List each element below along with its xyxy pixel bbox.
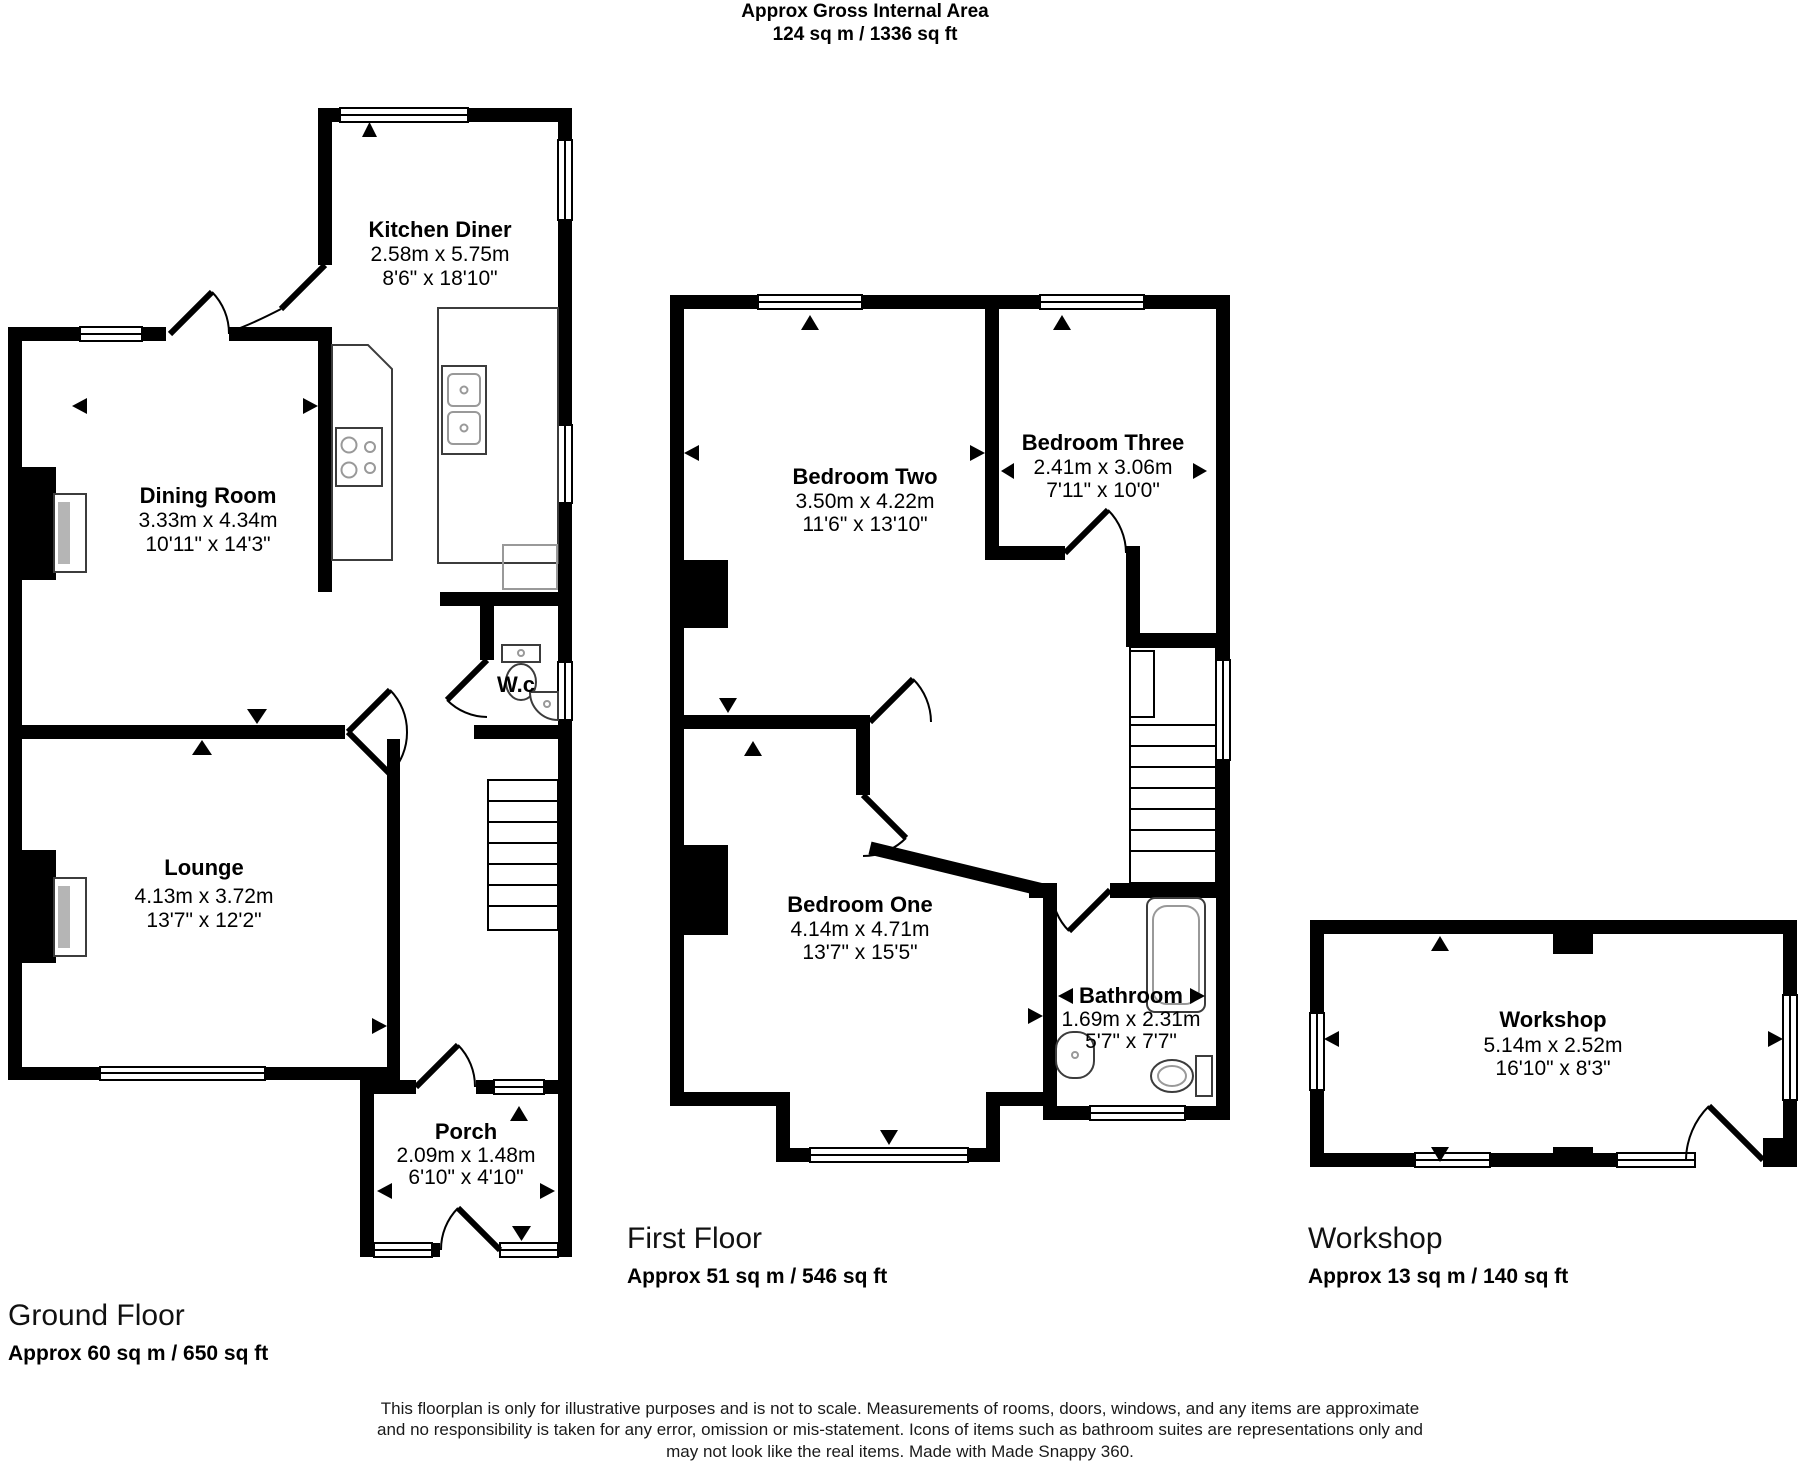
- lounge-fireplace-icon: [54, 878, 86, 956]
- room-metric: 5.14m x 2.52m: [1484, 1034, 1623, 1057]
- room-imperial: 13'7" x 12'2": [146, 909, 261, 932]
- view-marker-left-icon: [377, 1183, 392, 1199]
- bedroom-two-label: Bedroom Two 3.50m x 4.22m 11'6" x 13'10": [792, 464, 937, 536]
- first-floor-doors: [863, 510, 1126, 931]
- room-metric: 2.09m x 1.48m: [397, 1144, 536, 1167]
- room-metric: 3.50m x 4.22m: [796, 490, 935, 513]
- workshop-area: Approx 13 sq m / 140 sq ft: [1308, 1265, 1568, 1288]
- kitchen-diner-label: Kitchen Diner 2.58m x 5.75m 8'6" x 18'10…: [368, 217, 511, 290]
- disclaimer-line-3: may not look like the real items. Made w…: [666, 1442, 1134, 1461]
- ground-floor-plan: Kitchen Diner 2.58m x 5.75m 8'6" x 18'10…: [8, 108, 572, 1257]
- room-imperial: 8'6" x 18'10": [382, 267, 497, 290]
- view-marker-right-icon: [1193, 463, 1207, 479]
- room-imperial: 10'11" x 14'3": [145, 533, 270, 556]
- room-metric: 3.33m x 4.34m: [139, 509, 278, 532]
- dining-room-label: Dining Room 3.33m x 4.34m 10'11" x 14'3": [139, 483, 278, 556]
- view-marker-down-icon: [719, 698, 737, 713]
- disclaimer: This floorplan is only for illustrative …: [377, 1399, 1423, 1461]
- bedroom-three-label: Bedroom Three 2.41m x 3.06m 7'11" x 10'0…: [1022, 430, 1185, 502]
- room-imperial: 13'7" x 15'5": [802, 941, 917, 964]
- room-name: Bathroom: [1079, 983, 1183, 1008]
- room-imperial: 6'10" x 4'10": [408, 1166, 523, 1189]
- room-name: Kitchen Diner: [368, 217, 511, 242]
- view-marker-right-icon: [970, 445, 985, 461]
- view-marker-up-icon: [362, 122, 377, 137]
- ground-floor-stairs-icon: [488, 780, 558, 930]
- wc-label: W.c: [497, 672, 535, 697]
- workshop-door: [1686, 1106, 1763, 1160]
- hob-icon: [336, 428, 382, 486]
- room-metric: 4.14m x 4.71m: [791, 918, 930, 941]
- view-marker-up-icon: [192, 740, 212, 755]
- ground-floor-area: Approx 60 sq m / 650 sq ft: [8, 1342, 268, 1365]
- room-name: Dining Room: [140, 483, 277, 508]
- bathroom-toilet-icon: [1151, 1056, 1212, 1096]
- first-floor-area: Approx 51 sq m / 546 sq ft: [627, 1265, 887, 1288]
- workshop-plan: Workshop 5.14m x 2.52m 16'10" x 8'3": [1310, 920, 1797, 1167]
- kitchen-sink-icon: [442, 366, 486, 454]
- view-marker-down-icon: [880, 1130, 898, 1145]
- view-marker-up-icon: [744, 741, 762, 756]
- view-marker-right-icon: [372, 1018, 387, 1034]
- first-floor-stairs-icon: [1130, 647, 1216, 883]
- room-name: Porch: [435, 1119, 497, 1144]
- view-marker-up-icon: [1053, 315, 1071, 330]
- view-marker-down-icon: [247, 709, 267, 724]
- view-marker-left-icon: [1058, 988, 1073, 1004]
- bedroom-one-label: Bedroom One 4.14m x 4.71m 13'7" x 15'5": [787, 892, 932, 964]
- room-name: Lounge: [164, 855, 243, 880]
- room-metric: 2.58m x 5.75m: [371, 243, 510, 266]
- disclaimer-line-2: and no responsibility is taken for any e…: [377, 1420, 1423, 1439]
- view-marker-right-icon: [303, 398, 318, 414]
- room-name: Workshop: [1499, 1007, 1606, 1032]
- first-floor-plan: Bedroom Two 3.50m x 4.22m 11'6" x 13'10"…: [670, 295, 1230, 1162]
- porch-label: Porch 2.09m x 1.48m 6'10" x 4'10": [397, 1119, 536, 1189]
- room-metric: 4.13m x 3.72m: [135, 885, 274, 908]
- room-imperial: 16'10" x 8'3": [1495, 1057, 1610, 1080]
- lounge-label: Lounge 4.13m x 3.72m 13'7" x 12'2": [135, 855, 274, 932]
- view-marker-left-icon: [684, 445, 699, 461]
- view-marker-right-icon: [1028, 1008, 1043, 1024]
- room-name: Bedroom Two: [792, 464, 937, 489]
- room-imperial: 7'11" x 10'0": [1046, 479, 1160, 502]
- gross-area-value: 124 sq m / 1336 sq ft: [773, 24, 958, 45]
- disclaimer-line-1: This floorplan is only for illustrative …: [381, 1399, 1419, 1418]
- room-metric: 1.69m x 2.31m: [1062, 1008, 1201, 1031]
- workshop-label: Workshop 5.14m x 2.52m 16'10" x 8'3": [1484, 1007, 1623, 1080]
- lounge-chimney-breast: [8, 850, 56, 963]
- view-marker-right-icon: [1768, 1031, 1783, 1047]
- ground-floor-title: Ground Floor: [8, 1299, 185, 1332]
- room-imperial: 11'6" x 13'10": [802, 513, 927, 536]
- view-marker-up-icon: [510, 1106, 528, 1121]
- dining-chimney-breast: [8, 467, 56, 580]
- room-name: Bedroom Three: [1022, 430, 1185, 455]
- bedroom-two-chimney-breast: [684, 560, 728, 628]
- view-marker-up-icon: [1431, 936, 1449, 951]
- view-marker-right-icon: [540, 1183, 555, 1199]
- view-marker-up-icon: [801, 315, 819, 330]
- dining-fireplace-icon: [54, 494, 86, 572]
- room-name: Bedroom One: [787, 892, 932, 917]
- view-marker-down-icon: [512, 1226, 531, 1241]
- gross-area-title: Approx Gross Internal Area: [741, 1, 989, 22]
- header: Approx Gross Internal Area 124 sq m / 13…: [741, 1, 989, 45]
- floor-titles: Ground Floor Approx 60 sq m / 650 sq ft …: [8, 1222, 1568, 1365]
- room-metric: 2.41m x 3.06m: [1034, 456, 1173, 479]
- floorplan-canvas: Approx Gross Internal Area 124 sq m / 13…: [0, 0, 1800, 1464]
- room-imperial: 5'7" x 7'7": [1085, 1030, 1177, 1053]
- first-floor-title: First Floor: [627, 1222, 762, 1255]
- view-marker-left-icon: [1001, 463, 1014, 479]
- view-marker-left-icon: [72, 398, 87, 414]
- workshop-title: Workshop: [1308, 1222, 1443, 1255]
- view-marker-left-icon: [1324, 1031, 1339, 1047]
